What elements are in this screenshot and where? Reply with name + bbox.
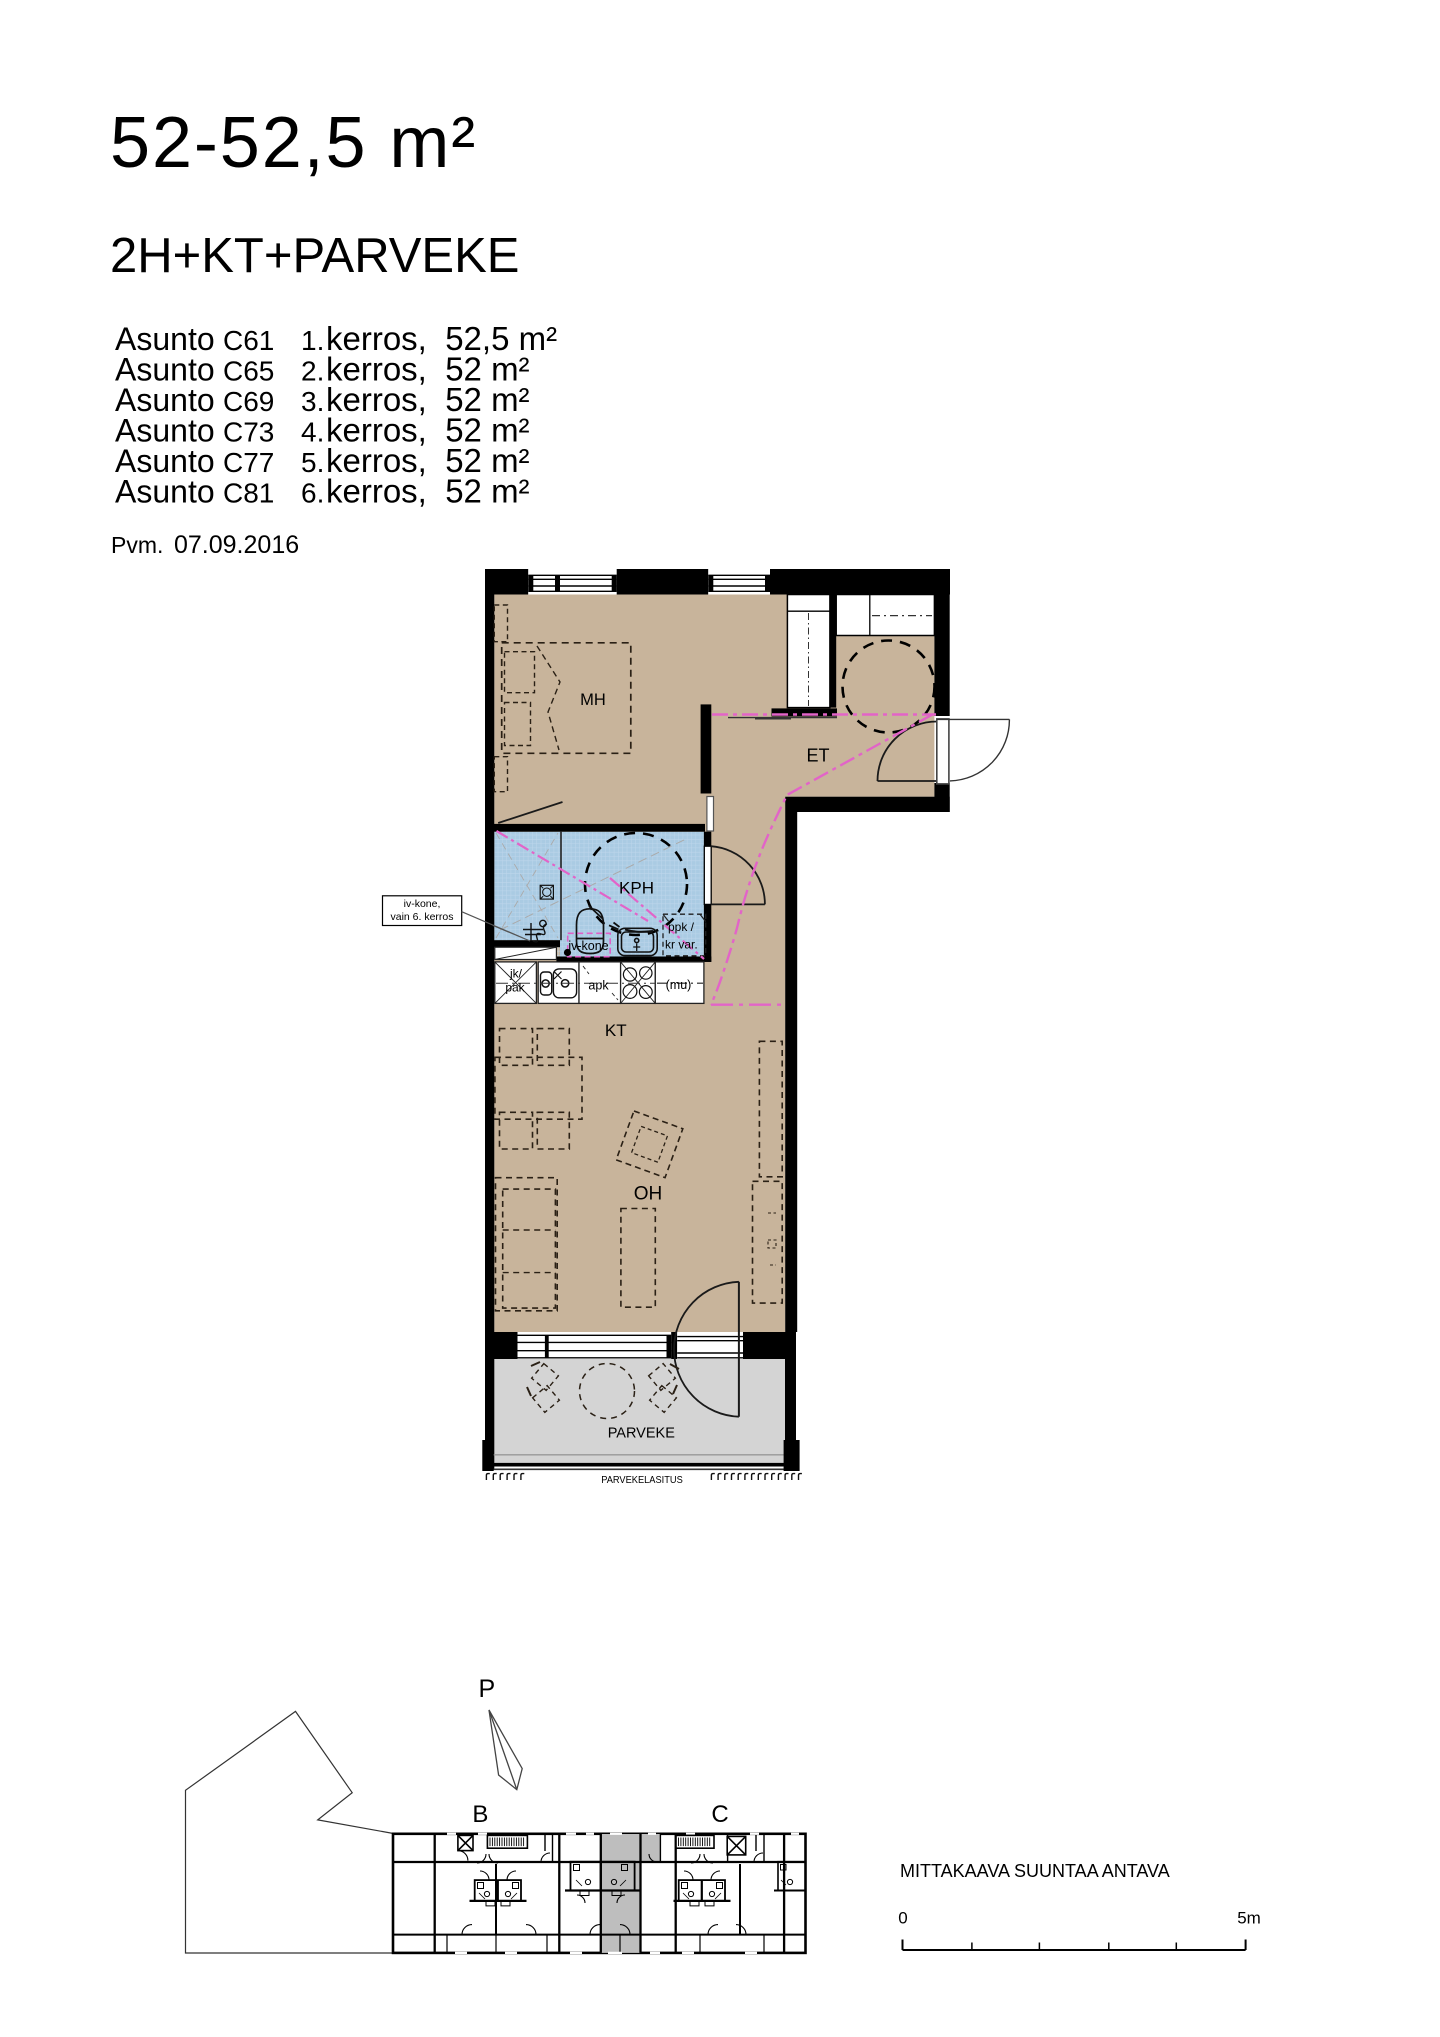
svg-text:5m: 5m: [1237, 1909, 1261, 1928]
svg-text:apk: apk: [588, 979, 609, 993]
svg-text:MH: MH: [580, 691, 606, 709]
svg-text:AsuntoC816.kerros, 52 m²: AsuntoC816.kerros, 52 m²: [115, 473, 530, 510]
svg-text:iv-kone: iv-kone: [568, 939, 608, 953]
svg-text:vain 6. kerros: vain 6. kerros: [390, 911, 453, 923]
svg-text:PARVEKELASITUS: PARVEKELASITUS: [601, 1474, 683, 1486]
svg-text:jk/: jk/: [509, 967, 523, 981]
svg-text:kr var.: kr var.: [665, 938, 698, 952]
svg-text:MITTAKAAVA SUUNTAA ANTAVA: MITTAKAAVA SUUNTAA ANTAVA: [900, 1861, 1170, 1881]
svg-text:PARVEKE: PARVEKE: [608, 1425, 675, 1441]
svg-text:P: P: [478, 1675, 495, 1703]
svg-text:pak: pak: [505, 981, 525, 995]
svg-text:Pvm.07.09.2016: Pvm.07.09.2016: [111, 531, 299, 559]
svg-text:2H+KT+PARVEKE: 2H+KT+PARVEKE: [110, 229, 519, 283]
svg-text:ppk /: ppk /: [668, 920, 695, 934]
svg-text:C: C: [711, 1801, 728, 1828]
svg-text:ET: ET: [806, 746, 829, 766]
svg-text:KPH: KPH: [619, 879, 654, 898]
svg-text:KT: KT: [605, 1021, 627, 1040]
svg-text:(mu): (mu): [666, 978, 692, 992]
svg-text:B: B: [472, 1801, 488, 1828]
svg-text:OH: OH: [634, 1184, 663, 1205]
svg-text:0: 0: [898, 1909, 907, 1928]
svg-text:iv-kone,: iv-kone,: [404, 898, 441, 910]
svg-text:52-52,5 m²: 52-52,5 m²: [110, 103, 477, 183]
